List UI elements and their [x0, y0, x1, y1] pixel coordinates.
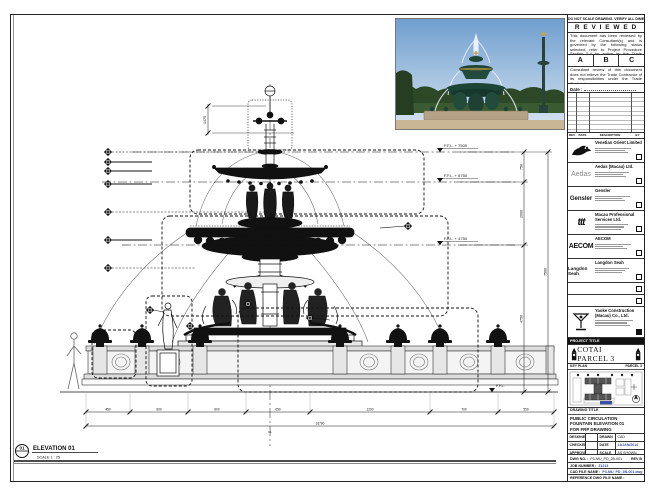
empty-consultant-box-2 [568, 295, 644, 307]
scale-figure [67, 333, 81, 389]
status-option-c[interactable]: C [619, 55, 644, 66]
project-title-header: PROJECT TITLE [568, 338, 644, 345]
address-lines [595, 196, 643, 202]
stamp-date-row: Date : [568, 84, 644, 93]
hdim-total: 16700 [316, 422, 325, 426]
cad-file-value: P3-MU_PD_2B-001.dwg [602, 469, 642, 474]
consultant-checkbox[interactable] [636, 274, 642, 280]
photo-fountain-concorde [396, 19, 564, 129]
key-plan-label: KEY PLAN [570, 364, 587, 369]
contractor-logo [568, 307, 594, 337]
drawing-sheet: F.F.L. + 7500 F.F.L. + 6750 F.F.L. + 475… [0, 0, 650, 488]
designed-label: DESIGNED [568, 434, 586, 441]
vdim-7500: 7500 [544, 268, 548, 276]
reviewed-status-options: A B C [568, 55, 644, 67]
empty-consultant-box-1 [568, 283, 644, 295]
date-label: Date : [570, 87, 583, 92]
gensler-logo: Gensler [568, 187, 594, 210]
hdim-1: 450 [105, 408, 111, 412]
title-block-panel: DO NOT SCALE DRAWING. VERIFY ALL DIMENSI… [567, 14, 645, 482]
contractor-checkbox [636, 329, 642, 335]
rev-col-header: REV [568, 133, 576, 138]
consultant-box-langdon-seah: Langdon Seah Langdon Seah [568, 259, 644, 283]
consultant-name: Venetian Orient Limited [595, 141, 643, 146]
hdim-4: 650 [275, 408, 281, 412]
date-col-header: DATE [576, 133, 589, 138]
consultant-checkbox[interactable] [636, 226, 642, 232]
consultant-checkbox[interactable] [636, 298, 642, 304]
consultant-checkbox[interactable] [636, 178, 642, 184]
vdim-4750: 4750 [520, 315, 524, 323]
ttt-logo: ttt [568, 211, 594, 234]
fields-table: DESIGNED DRAWN CAD CHECKED - DATE 13/JAN… [568, 434, 644, 455]
address-lines [595, 320, 643, 326]
drawn-value: CAD [616, 434, 644, 441]
dwg-no-row: DWG NO. : P3-MU_PD_2B-001 REV B [568, 455, 644, 463]
address-lines [595, 148, 643, 154]
hdim-6: 700 [461, 408, 467, 412]
date-value: 13/JAN/2014 [616, 442, 644, 449]
vdim-2000: 2000 [520, 210, 524, 218]
drawn-label: DRAWN [598, 434, 616, 441]
project-title-text: COTAI PARCEL 3 [577, 345, 635, 363]
dwg-no-value: P3-MU_PD_2B-001 [590, 455, 622, 462]
project-title: COTAI PARCEL 3 [568, 345, 644, 364]
consultant-checkbox[interactable] [636, 286, 642, 292]
designed-value [586, 434, 598, 441]
project-ornament-right [635, 347, 641, 362]
view-scale: SCALE 1 : 25 [37, 456, 60, 460]
level-label-7500: F.F.L. + 7500 [444, 143, 468, 148]
cad-file-label: CAD FILE NAME : [570, 469, 600, 474]
langdon-seah-logo: Langdon Seah [568, 259, 594, 282]
level-label-4750: F.F.L. + 4750 [444, 236, 468, 241]
consultant-checkbox[interactable] [636, 202, 642, 208]
view-title-callout: 01 ELEVATION 01 SCALE 1 : 25 [14, 445, 556, 464]
checked-label: CHECKED [568, 442, 586, 449]
aecom-logo: AECOM [568, 235, 594, 258]
balustrade [60, 346, 558, 392]
consultant-name: Langdon Seah [595, 261, 643, 266]
top-dim-label: 1475 [203, 116, 207, 124]
desc-col-header: DESCRIPTION [589, 133, 631, 138]
view-title: ELEVATION 01 [33, 446, 75, 452]
centerline-label: CL [268, 430, 272, 434]
reviewed-stamp-text2: Consultant review of this document does … [568, 67, 644, 84]
consultant-checkbox[interactable] [636, 250, 642, 256]
vdim-750: 750 [520, 164, 524, 170]
hdim-3: 600 [214, 408, 220, 412]
status-option-b[interactable]: B [594, 55, 620, 66]
dwg-no-label: DWG NO. : [570, 455, 588, 462]
aedas-logo: Aedas [568, 163, 594, 186]
drawing-title-box: DRAWING TITLE PUBLIC CIRCULATION FOUNTAI… [568, 408, 644, 434]
key-plan: KEY PLAN PARCEL 3 [568, 364, 644, 408]
consultant-name: AECOM [595, 237, 643, 242]
date-line[interactable] [584, 84, 636, 91]
date-field-label: DATE [598, 442, 616, 449]
address-lines [595, 268, 643, 274]
key-plan-map [568, 370, 644, 407]
panel-top-note: DO NOT SCALE DRAWING. VERIFY ALL DIMENSI… [568, 15, 644, 23]
view-number: 01 [19, 446, 25, 451]
contractor-box: Yaoke Construction (Macau) Co., Ltd. [568, 307, 644, 338]
consultant-name: Gensler [595, 189, 643, 194]
hdim-5: 1200 [366, 408, 373, 412]
bottom-dimensions: 450 600 600 650 1200 700 550 16700 CL [84, 392, 557, 434]
consultant-checkbox[interactable] [636, 154, 642, 160]
lower-figures [202, 283, 337, 327]
revision-table: REV DATE DESCRIPTION BY [568, 93, 644, 139]
consultant-name: Macau Professional Services Ltd. [595, 213, 643, 222]
status-option-a[interactable]: A [568, 55, 594, 66]
job-number-label: JOB NUMBER : [570, 463, 596, 468]
reviewed-stamp-text1: This document has been reviewed by the r… [568, 33, 644, 55]
contractor-name: Yaoke Construction (Macau) Co., Ltd. [595, 309, 643, 318]
consultant-box-aecom: AECOM AECOM [568, 235, 644, 259]
consultant-box-aedas: Aedas Aedas (Macau) Ltd. [568, 163, 644, 187]
level-label-ffl: F.F.L. [496, 384, 505, 388]
consultant-box-macau-professional: ttt Macau Professional Services Ltd. [568, 211, 644, 235]
address-lines [595, 172, 643, 178]
statue [157, 303, 179, 376]
checked-value: - [586, 442, 598, 449]
reference-dwg-row: REFERENCE DWG FILE NAME : [568, 475, 644, 481]
reviewed-stamp-title: R E V I E W E D [568, 23, 644, 33]
reference-dwg-label: REFERENCE DWG FILE NAME : [570, 475, 625, 481]
by-col-header: BY [631, 133, 644, 138]
rev-value: REV B [631, 455, 644, 462]
drawing-title-line3: FOR FRP DRAWING [570, 427, 642, 432]
venetian-lion-logo [568, 139, 594, 162]
address-lines [595, 244, 643, 250]
hdim-2: 600 [156, 408, 162, 412]
key-plan-parcel: PARCEL 3 [626, 364, 642, 369]
consultant-box-venetian: Venetian Orient Limited [568, 139, 644, 163]
hdim-7: 550 [523, 408, 529, 412]
job-number-value: 31213 [598, 463, 608, 468]
consultant-name: Aedas (Macau) Ltd. [595, 165, 643, 170]
consultant-box-gensler: Gensler Gensler [568, 187, 644, 211]
level-label-6750: F.F.L. + 6750 [444, 173, 468, 178]
reference-photo [395, 18, 565, 130]
